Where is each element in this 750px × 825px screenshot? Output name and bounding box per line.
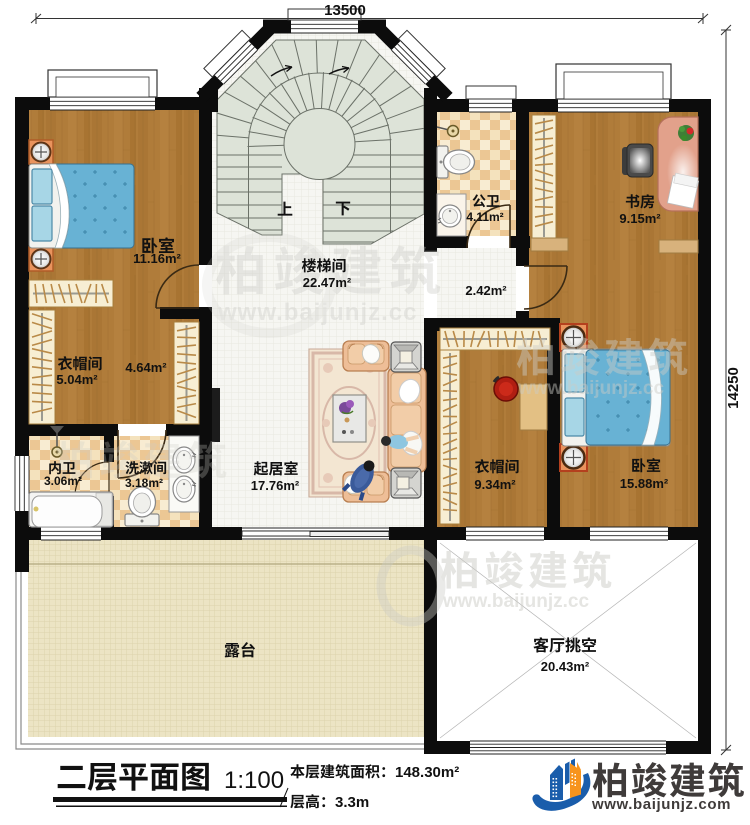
svg-text:11.16m²: 11.16m² — [133, 251, 181, 266]
svg-text:9.34m²: 9.34m² — [474, 477, 516, 492]
svg-text:www.baijunjz.cc: www.baijunjz.cc — [442, 591, 589, 612]
svg-text:3.06m²: 3.06m² — [44, 474, 82, 488]
svg-text:14250: 14250 — [725, 367, 742, 409]
svg-text:13500: 13500 — [324, 2, 366, 19]
svg-text:9.15m²: 9.15m² — [619, 211, 661, 226]
svg-text:www.baijunjz.com: www.baijunjz.com — [591, 796, 731, 813]
svg-text:148.30m²: 148.30m² — [395, 764, 459, 781]
svg-text:20.43m²: 20.43m² — [541, 659, 590, 674]
svg-text:4.64m²: 4.64m² — [125, 360, 167, 375]
svg-text:22.47m²: 22.47m² — [303, 275, 352, 290]
svg-text:15.88m²: 15.88m² — [620, 476, 669, 491]
svg-text:3.3m: 3.3m — [335, 794, 369, 811]
svg-text:17.76m²: 17.76m² — [251, 478, 300, 493]
svg-text:1:100: 1:100 — [224, 767, 284, 794]
svg-text:www.baijunjz.cc: www.baijunjz.cc — [517, 378, 664, 399]
svg-text:5.04m²: 5.04m² — [56, 372, 98, 387]
svg-text:2.42m²: 2.42m² — [465, 283, 507, 298]
svg-text:3.18m²: 3.18m² — [125, 476, 163, 490]
svg-text:4.11m²: 4.11m² — [466, 210, 503, 224]
